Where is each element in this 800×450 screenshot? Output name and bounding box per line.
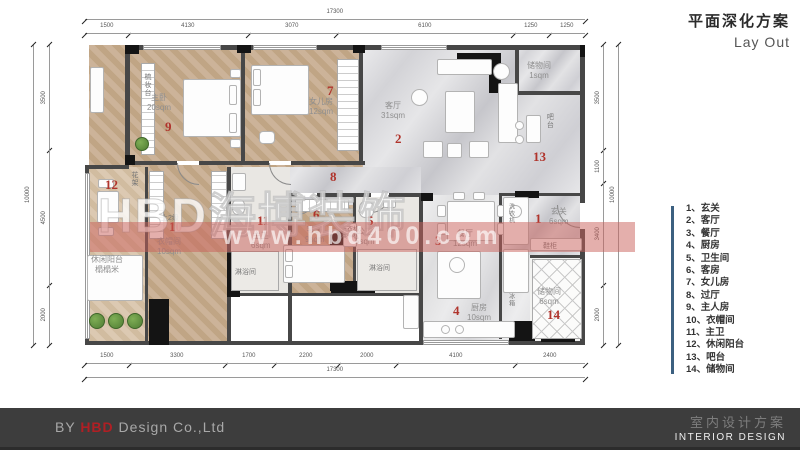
span: 吧台 [545,113,553,129]
span: 休闲阳台 [706,339,744,350]
wall-block [353,45,365,53]
span: 女儿房 [309,97,333,107]
stool [259,131,275,144]
span: 餐厅 [701,228,720,239]
title-chinese: 平面深化方案 [688,10,790,31]
span: 3070 [285,23,298,29]
dining-chair [453,192,465,200]
pillow [253,69,261,86]
legend-item: 8、过厅 [686,290,744,302]
page-title: 平面深化方案 Lay Out [688,10,790,50]
bar-stool [515,121,524,130]
pillow [229,85,237,105]
span: 2000 [360,353,373,359]
wall [125,45,130,163]
wall-block [149,299,169,345]
wall-block [125,45,139,54]
coffee-table [445,91,475,133]
wall [85,165,129,169]
span: 4130 [181,23,194,29]
dim-left-segments: 350045002000 [38,45,50,345]
wall [515,91,585,95]
legend-item: 14、储物间 [686,364,744,376]
legend-accent-bar [671,206,674,374]
span: 12sqm [309,107,333,117]
span: 1250 [560,23,573,29]
plant [108,313,124,329]
dining-chair [473,192,485,200]
legend-item: 12、休闲阳台 [686,339,744,351]
span: 储物间 [527,61,551,71]
label-washer: 洗衣机 [507,203,514,224]
span: 客厅 [701,215,720,226]
window [423,340,509,345]
cooktop-burner [441,325,450,334]
room-label-kitchen: 厨房10sqm [467,303,491,322]
bar-counter [526,115,541,143]
dim-right-segments: 3500110034002000 [592,45,604,345]
side-table [447,143,462,158]
dimension-segment: 1250 [513,22,549,34]
sofa-console [437,59,492,75]
dimension-segment: 2200 [274,352,338,364]
span: 3300 [170,353,183,359]
span: 1500 [100,23,113,29]
footer-company: BY HBD Design Co.,Ltd [55,419,225,435]
legend-item: 7、女儿房 [686,277,744,289]
wall-block [237,45,251,53]
window [381,45,447,50]
span: 主人房 [701,302,730,313]
footer-title-english: INTERIOR DESIGN [675,432,786,443]
span: 玄关 [551,207,567,217]
span: 主卧 [151,93,167,103]
label-shower-1: 淋浴间 [235,267,256,277]
plant [135,137,149,151]
wall [227,293,423,296]
legend-item: 2、客厅 [686,215,744,227]
island-sink [449,257,465,273]
span: 玄关 [701,203,720,214]
wall-block [421,193,433,201]
footer-company-name: Design Co.,Ltd [114,419,226,435]
fridge [503,249,529,293]
span: 2000 [41,308,47,321]
legend-item: 3、餐厅 [686,228,744,240]
span: 17300 [327,9,344,15]
legend-item: 9、主人房 [686,302,744,314]
room-label-bar: 吧台 [545,113,553,129]
dim-left-total: 10000 [22,45,34,345]
room-number-storage: 14 [547,307,560,323]
span: 14、 [686,364,706,375]
legend-item: 1、玄关 [686,203,744,215]
dimension-segment: 4100 [396,352,515,364]
span: 17300 [327,367,344,373]
dimension-segment: 1700 [225,352,274,364]
dimension-segment: 3070 [248,22,337,34]
kitchen-counter [423,321,515,338]
span: 8、 [686,290,701,301]
room-number-master: 9 [165,119,172,135]
window [143,45,221,50]
room-label-living: 客厅31sqm [381,101,405,120]
dimension-segment: 1100 [592,150,604,183]
legend-item: 10、衣帽间 [686,315,744,327]
legend-item: 11、主卫 [686,327,744,339]
span: 储物间 [537,287,561,297]
lounge-chair [411,89,428,106]
span: 10、 [686,315,706,326]
span: 厨房 [701,240,720,251]
span: 卫生间 [701,253,730,264]
wardrobe [337,59,359,151]
footer-brand: HBD [80,419,113,435]
footer-title-chinese: 室内设计方案 [675,412,786,431]
span: 6100 [418,23,431,29]
span: 4、 [686,240,701,251]
sink-counter [403,295,419,329]
span: 31sqm [381,111,405,121]
span: 休闲阳台 [91,255,123,265]
span: 4100 [449,353,462,359]
pillow [285,265,293,278]
dimension-segment: 2000 [592,285,604,345]
span: 3、 [686,228,701,239]
legend-item: 4、厨房 [686,240,744,252]
dim-top-total: 17300 [85,8,585,20]
dim-top-segments: 150041303070610012501250 [85,22,585,34]
pillow [229,113,237,133]
room-number-kitchen: 4 [453,303,460,319]
watermark-url: www.hbd400.com [110,222,615,251]
wall-block [580,45,585,57]
title-english: Lay Out [688,34,790,50]
dimension-segment: 4130 [128,22,247,34]
room-label-storage-top: 储物间1sqm [527,61,551,80]
span: 6、 [686,265,701,276]
dimension-segment: 2000 [338,352,396,364]
bar-stool [515,135,524,144]
label-shower-2: 淋浴间 [369,263,390,273]
footer-project-type: 室内设计方案 INTERIOR DESIGN [675,412,786,443]
cooktop-burner [455,325,464,334]
wall [530,255,585,258]
plant [89,313,105,329]
span: 10000 [610,187,616,204]
dimension-segment: 10000 [607,45,619,345]
span: 10000 [25,187,31,204]
dimension-segment: 1500 [85,352,129,364]
dim-bottom-segments: 1500330017002200200041002400 [85,352,585,364]
wall [499,193,585,196]
wall [125,161,365,165]
span: 2400 [544,353,557,359]
label-dressing-table: 梳妆台 [142,73,152,97]
room-label-balcony: 休闲阳台榻榻米 [91,255,123,274]
dining-chair [437,205,446,217]
nightstand [230,139,241,148]
room-label-daughter: 女儿房12sqm [309,97,333,116]
dimension-segment: 2400 [515,352,585,364]
span: 1sqm [529,71,549,81]
wall [419,193,423,343]
legend-item: 13、吧台 [686,352,744,364]
span: 3500 [595,91,601,104]
room-legend: 1、玄关2、客厅3、餐厅4、厨房5、卫生间6、客房7、女儿房8、过厅9、主人房1… [686,203,744,377]
span: 1500 [100,353,113,359]
dimension-segment: 2000 [38,285,50,345]
span: 客厅 [385,101,401,111]
armchair [423,141,443,158]
wall-block [125,155,135,165]
dimension-segment: 1500 [85,22,128,34]
footer-bar: BY HBD Design Co.,Ltd 室内设计方案 INTERIOR DE… [0,408,800,450]
window [253,45,317,50]
span: 2000 [595,308,601,321]
span: 1100 [595,160,601,173]
span: 女儿房 [701,277,730,288]
room-number-bar: 13 [533,149,546,165]
legend-item: 6、客房 [686,265,744,277]
dimension-segment: 1250 [549,22,585,34]
span: 吧台 [706,352,725,363]
dimension-segment: 17300 [85,366,585,378]
dimension-segment: 6100 [336,22,512,34]
armchair [469,141,489,158]
dimension-segment: 17300 [85,8,585,20]
span: 20sqm [147,103,171,113]
nightstand [230,69,241,78]
span: 12、 [686,339,706,350]
wall [359,45,363,165]
vanity-cabinet [90,67,104,113]
span: 1、 [686,203,701,214]
span: 过厅 [701,290,720,301]
dim-right-total: 10000 [607,45,619,345]
span: 6sqm [539,297,559,307]
dimension-segment: 3300 [129,352,225,364]
span: 厨房 [471,303,487,313]
span: 1700 [243,353,256,359]
dimension-segment: 10000 [22,45,34,345]
span: 3500 [41,91,47,104]
dimension-segment: 3500 [592,45,604,150]
dim-bottom-total: 17300 [85,366,585,378]
span: 榻榻米 [95,265,119,275]
span: 衣帽间 [706,315,735,326]
span: 5、 [686,253,701,264]
span: 4500 [41,211,47,224]
span: 2、 [686,215,701,226]
room-number-living: 2 [395,131,402,147]
legend-item: 5、卫生间 [686,253,744,265]
span: 10sqm [467,313,491,323]
plant [127,313,143,329]
span: 9、 [686,302,701,313]
dimension-segment: 3500 [38,45,50,150]
footer-by: BY [55,419,80,435]
label-fridge: 冰箱 [507,293,514,307]
span: 1250 [524,23,537,29]
span: 2200 [299,353,312,359]
sofa [498,83,518,143]
wall [241,45,245,165]
span: 11、 [686,327,706,338]
span: 13、 [686,352,706,363]
span: 储物间 [706,364,735,375]
room-label-storage: 储物间6sqm [537,287,561,306]
span: 客房 [701,265,720,276]
span: 主卫 [706,327,725,338]
dimension-segment: 4500 [38,150,50,285]
pillow [253,89,261,106]
span: 7、 [686,277,701,288]
lounge-chair [493,63,510,80]
